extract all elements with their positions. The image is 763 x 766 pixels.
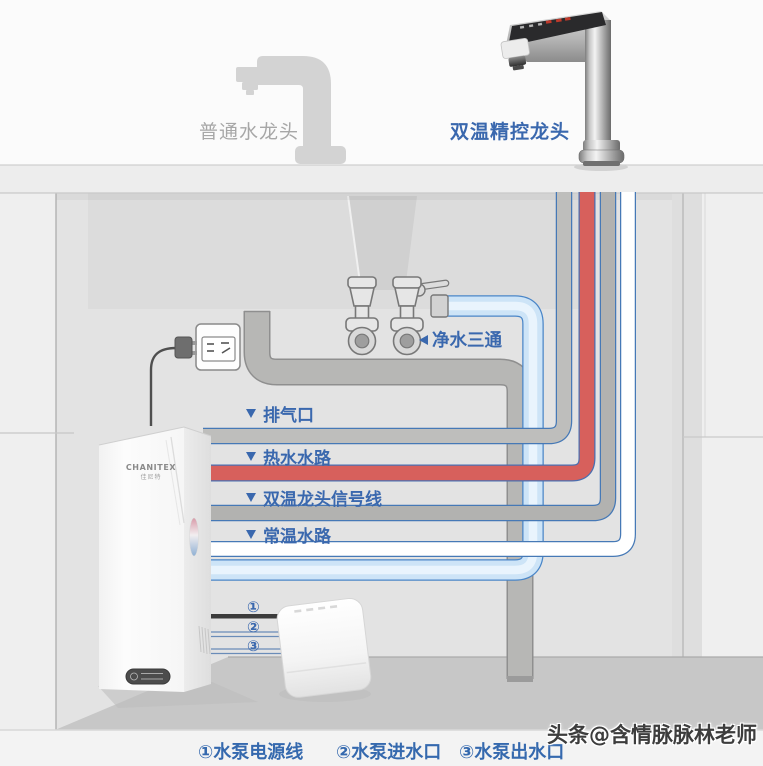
smart-faucet-label: 双温精控龙头 xyxy=(444,117,576,144)
pump-callout-1: ① xyxy=(247,598,260,616)
purifier-badge xyxy=(126,669,170,684)
air-vent-label: 排气口 xyxy=(246,401,314,426)
under-sink-installation-diagram: 普通水龙头 双温精控龙头 净水三通 排气口 热水水路 双温龙头信号线 常温水路 … xyxy=(0,0,763,766)
pump-callout-2: ② xyxy=(247,618,260,636)
purifier-brand: CHANITEX 佳尼特 xyxy=(112,463,190,481)
legend-pump-inlet: ②水泵进水口 xyxy=(336,738,441,764)
triangle-down-icon xyxy=(246,530,256,539)
ordinary-faucet-label: 普通水龙头 xyxy=(196,117,302,144)
purifier-emblem xyxy=(190,518,199,556)
triangle-left-icon xyxy=(419,335,428,345)
triangle-down-icon xyxy=(246,409,256,418)
triangle-down-icon xyxy=(246,452,256,461)
tee-label: 净水三通 xyxy=(419,327,502,352)
ambient-water-label: 常温水路 xyxy=(246,522,331,547)
hot-water-label: 热水水路 xyxy=(246,444,331,469)
booster-pump xyxy=(276,597,373,699)
legend-pump-power: ①水泵电源线 xyxy=(198,738,303,764)
diagram-graphics xyxy=(0,0,763,766)
pump-callout-3: ③ xyxy=(247,637,260,655)
watermark: 头条@含情脉脉林老师 xyxy=(547,719,757,749)
triangle-down-icon xyxy=(246,493,256,502)
power-outlet xyxy=(196,324,240,370)
countertop xyxy=(0,165,763,193)
signal-line-label: 双温龙头信号线 xyxy=(246,485,382,510)
